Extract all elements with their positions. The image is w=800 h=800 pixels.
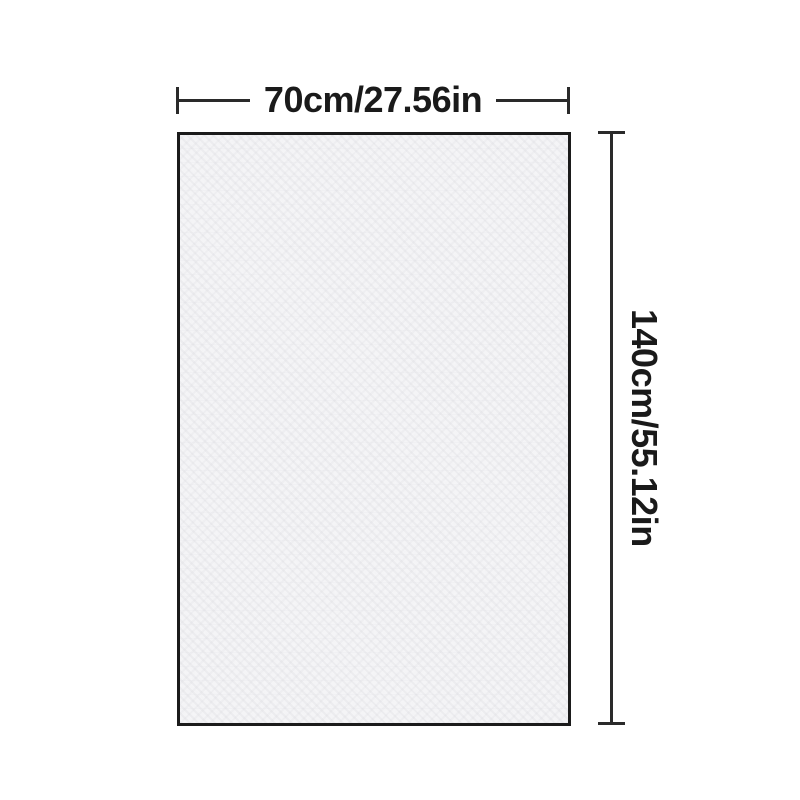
width-dimension-line-right bbox=[496, 99, 567, 102]
height-dimension-line bbox=[610, 133, 613, 723]
width-dimension-right-tick bbox=[567, 87, 570, 114]
width-dimension-line-left bbox=[179, 99, 250, 102]
width-dimension-label: 70cm/27.56in bbox=[250, 79, 496, 121]
fabric-panel bbox=[177, 132, 571, 726]
product-image-stage: 70cm/27.56in 140cm/55.12in bbox=[0, 0, 800, 800]
height-dimension-label: 140cm/55.12in bbox=[623, 309, 665, 547]
fabric-noise-texture bbox=[180, 135, 568, 723]
height-dimension-label-box: 140cm/55.12in bbox=[621, 132, 667, 724]
width-dimension: 70cm/27.56in bbox=[176, 84, 570, 116]
